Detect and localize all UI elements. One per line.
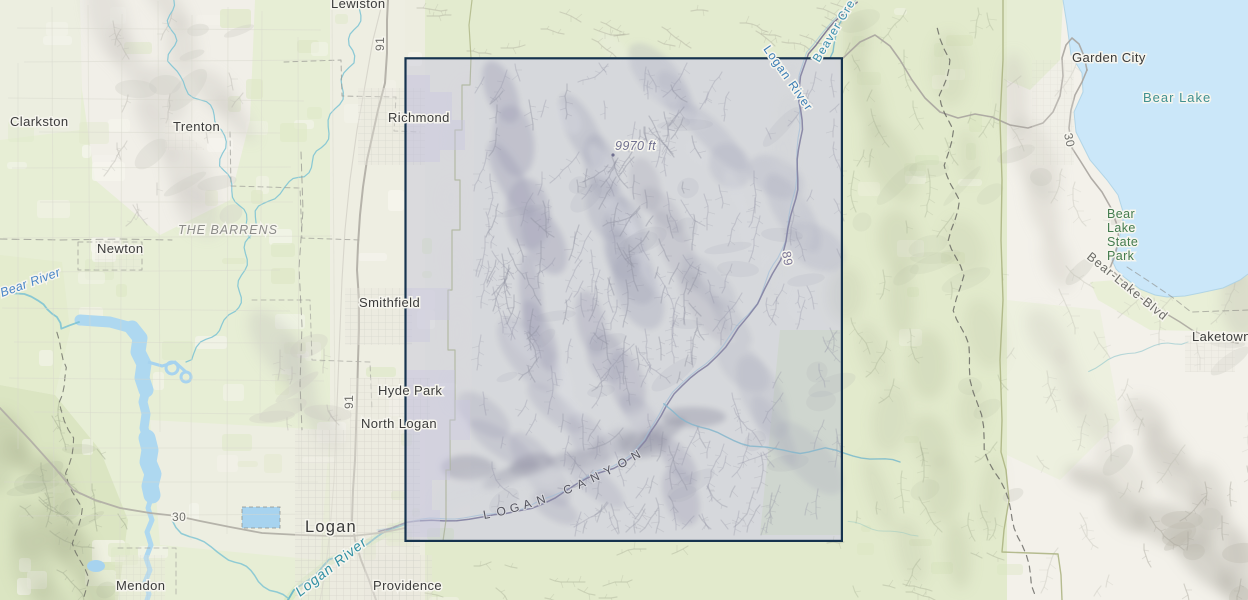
svg-text:Clarkston: Clarkston: [10, 114, 69, 129]
svg-text:91: 91: [373, 37, 387, 51]
svg-text:Mendon: Mendon: [116, 578, 165, 593]
svg-text:State: State: [1107, 235, 1138, 249]
svg-text:30: 30: [172, 510, 186, 524]
svg-text:Lewiston: Lewiston: [331, 0, 386, 11]
svg-text:Smithfield: Smithfield: [359, 295, 420, 310]
svg-text:Lake: Lake: [1107, 221, 1136, 235]
svg-text:Logan: Logan: [305, 518, 357, 536]
svg-text:Garden City: Garden City: [1072, 50, 1146, 65]
svg-text:North Logan: North Logan: [361, 416, 437, 431]
svg-text:Bear: Bear: [1107, 207, 1135, 221]
svg-text:Bear Lake: Bear Lake: [1143, 90, 1211, 105]
svg-text:9970 ft: 9970 ft: [615, 139, 656, 153]
svg-text:Hyde Park: Hyde Park: [378, 383, 442, 398]
svg-text:30: 30: [1061, 132, 1078, 149]
svg-text:Providence: Providence: [373, 578, 442, 593]
svg-text:Laketown: Laketown: [1192, 329, 1248, 344]
svg-text:Newton: Newton: [97, 241, 143, 256]
svg-text:Trenton: Trenton: [173, 119, 220, 134]
svg-text:89: 89: [779, 250, 795, 267]
svg-text:Richmond: Richmond: [388, 110, 450, 125]
svg-text:91: 91: [342, 395, 356, 409]
svg-text:THE BARRENS: THE BARRENS: [178, 223, 278, 237]
svg-text:Park: Park: [1107, 249, 1135, 263]
